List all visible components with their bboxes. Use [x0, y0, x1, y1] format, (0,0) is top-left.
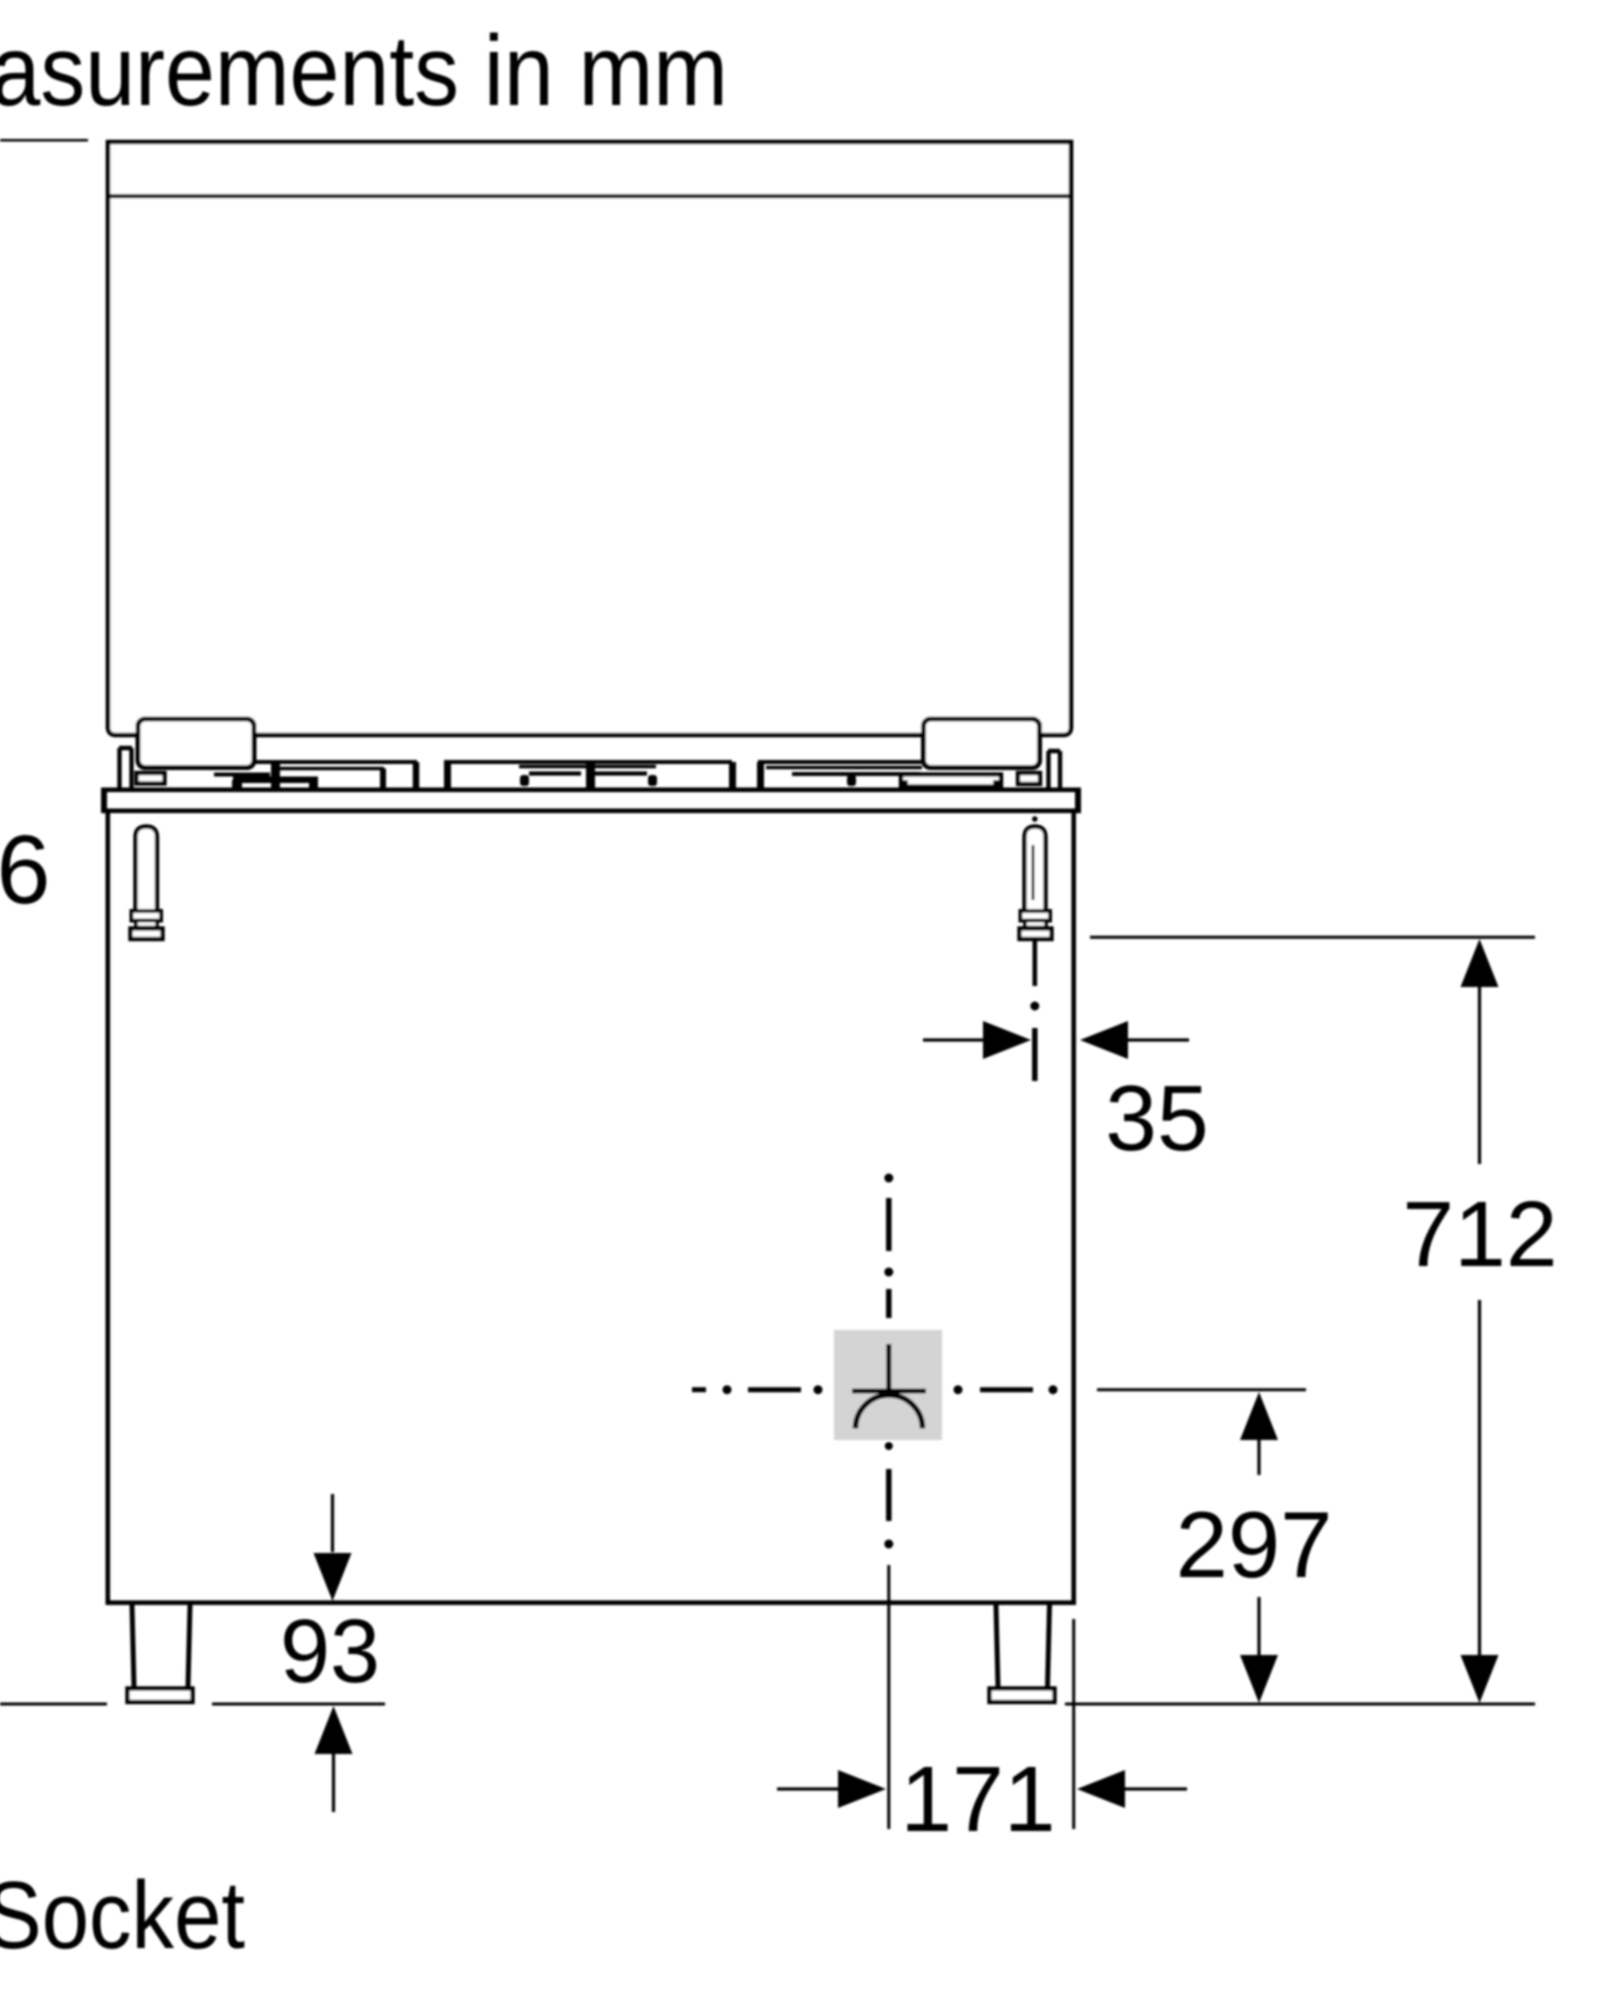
svg-text:35: 35 — [1105, 1066, 1208, 1170]
svg-text:93: 93 — [280, 1602, 380, 1702]
svg-text:6: 6 — [0, 815, 50, 924]
svg-text:Socket: Socket — [0, 1862, 245, 1969]
svg-text:712: 712 — [1402, 1182, 1557, 1286]
svg-text:171: 171 — [900, 1747, 1055, 1851]
svg-text:297: 297 — [1176, 1492, 1333, 1597]
svg-text:Measurements in mm: Measurements in mm — [0, 15, 728, 127]
